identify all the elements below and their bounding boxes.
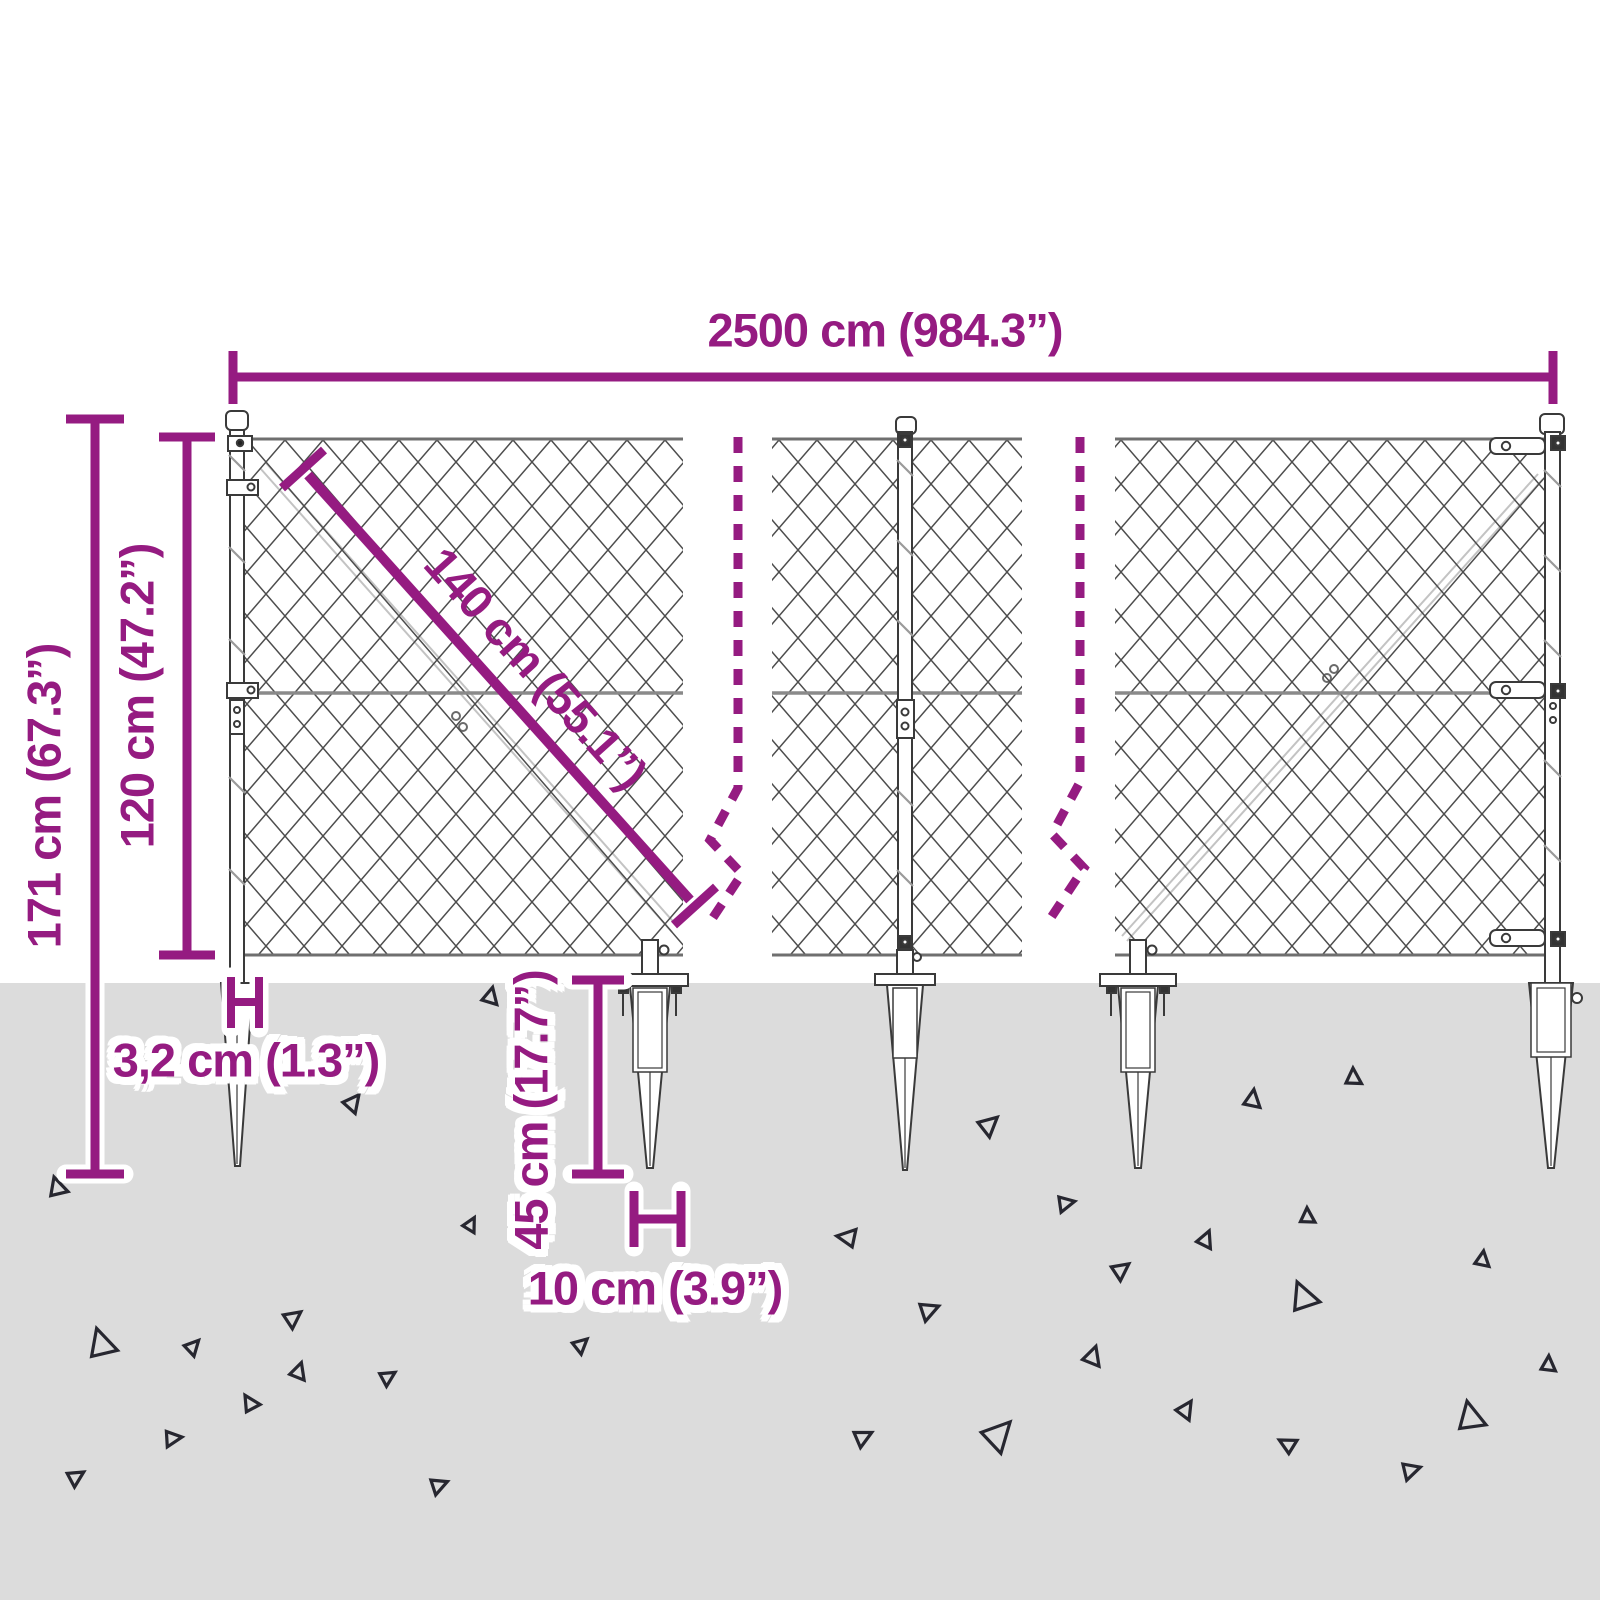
dimension-total-width-line <box>233 351 1553 404</box>
diagram-canvas <box>0 0 1600 1600</box>
fence-dimension-diagram: 2500 cm (984.3”) 171 cm (67.3”) 120 cm (… <box>0 0 1600 1600</box>
break-symbol-left <box>706 437 742 928</box>
dimension-label-total-width: 2500 cm (984.3”) <box>707 303 1062 358</box>
break-symbol-right <box>1048 437 1084 922</box>
post-middle <box>896 417 916 983</box>
dimension-label-spike-depth: 45 cm (17.7”) <box>504 970 559 1250</box>
dimension-mesh-height-line <box>159 437 215 955</box>
dimension-label-post-width: 3,2 cm (1.3”) <box>113 1033 380 1088</box>
dimension-label-spike-width: 10 cm (3.9”) <box>528 1261 782 1316</box>
dimension-label-total-height: 171 cm (67.3”) <box>17 644 72 949</box>
dimension-label-mesh-height: 120 cm (47.2”) <box>110 544 165 849</box>
mesh-panels <box>245 440 1544 954</box>
